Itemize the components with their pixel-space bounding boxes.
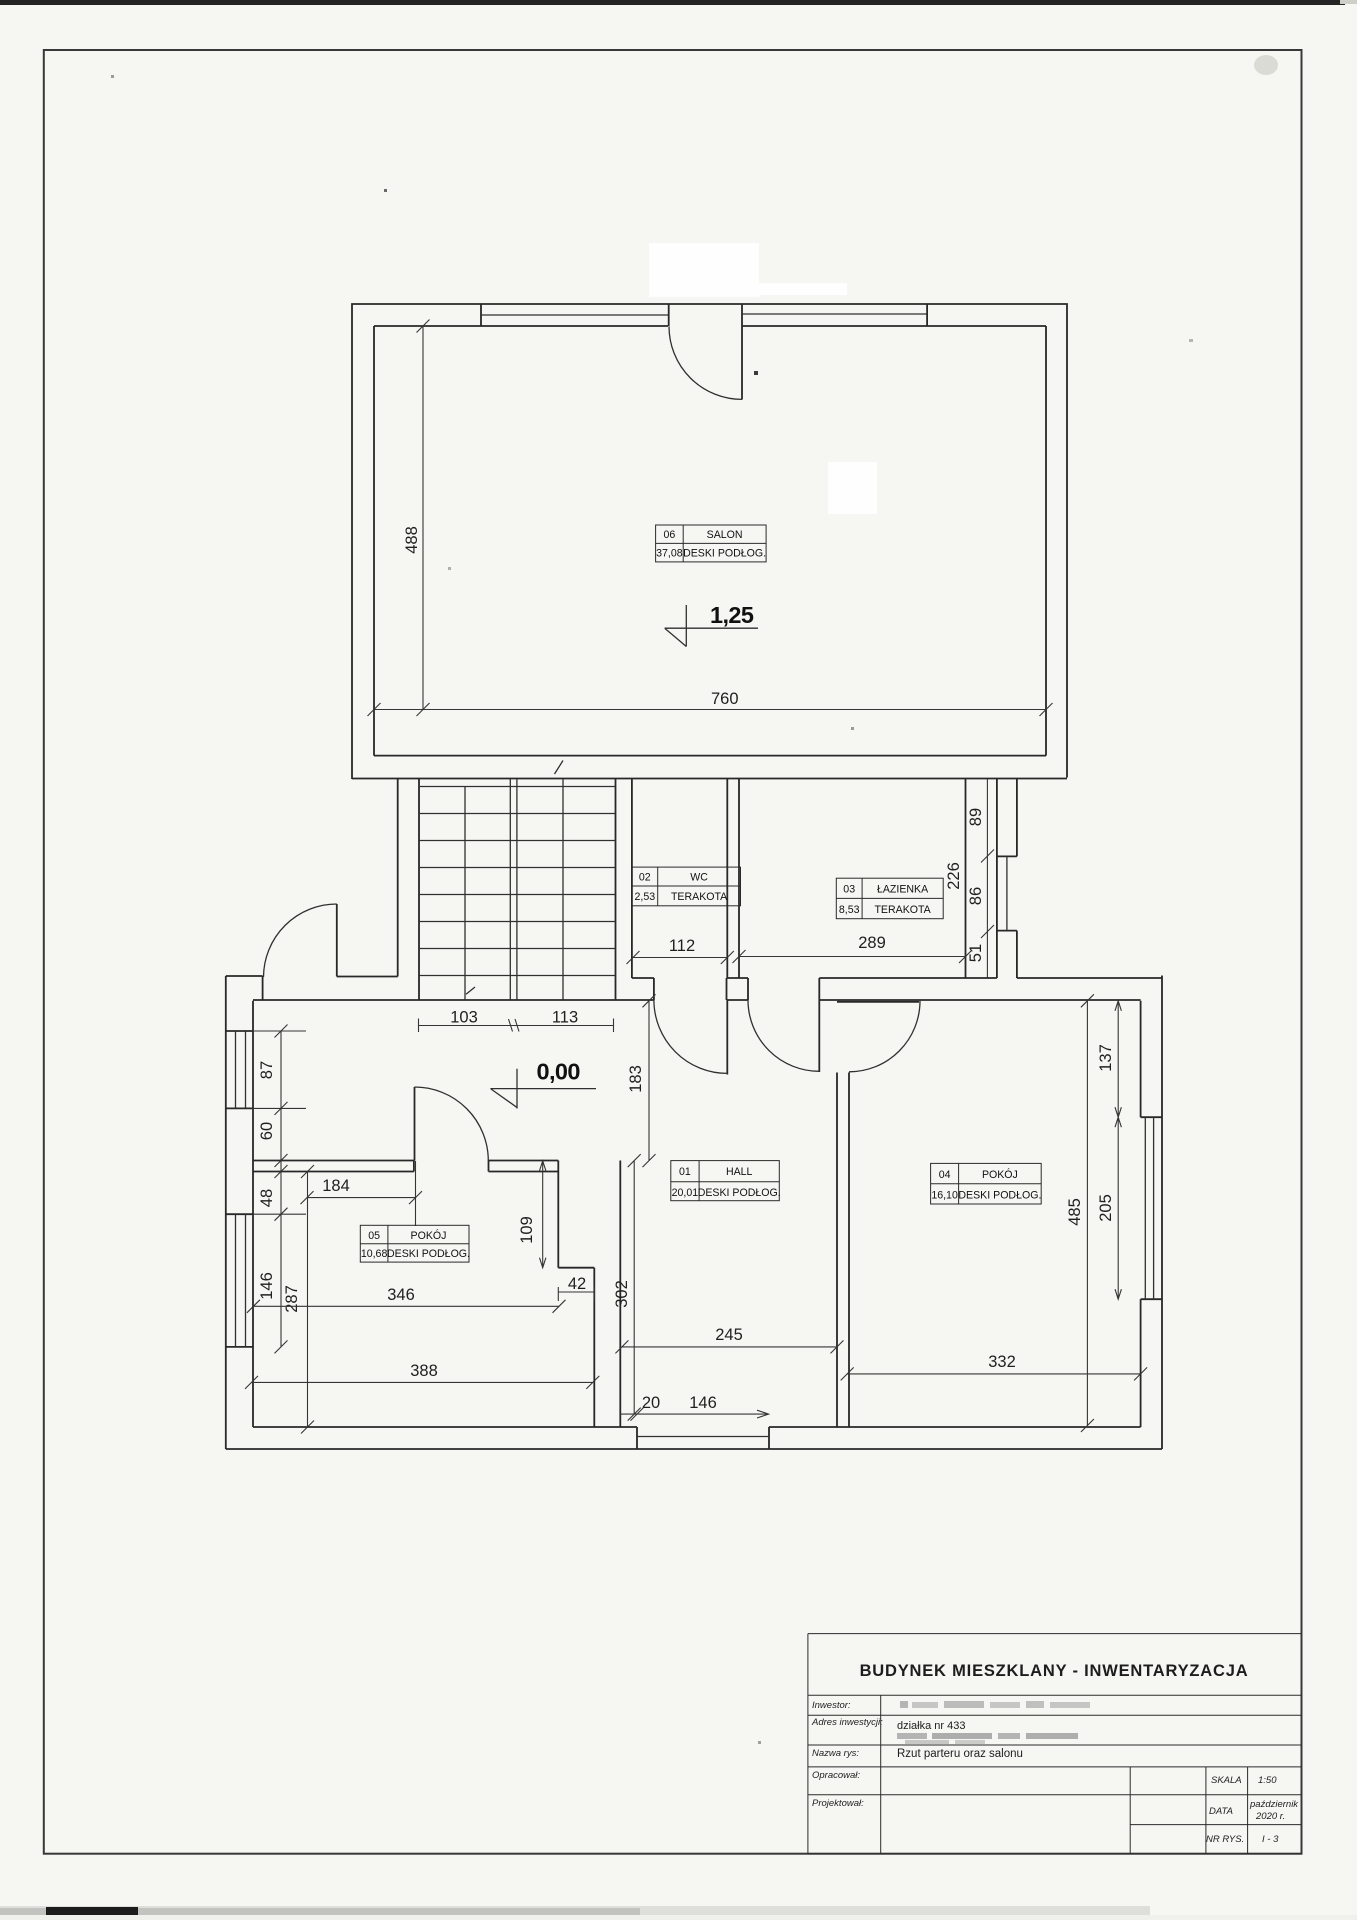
svg-text:146: 146 (689, 1394, 717, 1412)
svg-text:DESKI PODŁOG.: DESKI PODŁOG. (958, 1189, 1041, 1201)
svg-text:86: 86 (967, 887, 985, 905)
svg-text:184: 184 (322, 1177, 350, 1195)
svg-text:109: 109 (518, 1216, 536, 1244)
svg-text:388: 388 (410, 1362, 438, 1380)
svg-text:332: 332 (988, 1353, 1016, 1371)
svg-text:205: 205 (1097, 1194, 1115, 1222)
svg-text:1,25: 1,25 (710, 602, 754, 628)
svg-text:SALON: SALON (707, 529, 743, 541)
svg-text:42: 42 (568, 1275, 586, 1293)
svg-text:302: 302 (613, 1280, 631, 1308)
svg-text:DESKI PODŁOG.: DESKI PODŁOG. (683, 547, 766, 559)
svg-text:103: 103 (450, 1009, 478, 1027)
svg-text:87: 87 (258, 1061, 276, 1079)
svg-text:październik: październik (1249, 1799, 1299, 1810)
svg-text:1:50: 1:50 (1258, 1775, 1277, 1786)
svg-text:01: 01 (679, 1166, 691, 1178)
svg-text:48: 48 (258, 1189, 276, 1207)
svg-text:06: 06 (664, 529, 676, 541)
svg-text:TERAKOTA: TERAKOTA (874, 904, 931, 916)
svg-text:8,53: 8,53 (839, 904, 860, 916)
svg-text:POKÓJ: POKÓJ (982, 1168, 1018, 1181)
svg-text:02: 02 (639, 872, 651, 884)
svg-text:ŁAZIENKA: ŁAZIENKA (877, 883, 929, 895)
svg-text:16,10: 16,10 (931, 1189, 958, 1201)
svg-text:Adres inwestycji:: Adres inwestycji: (811, 1717, 883, 1728)
svg-text:05: 05 (368, 1230, 380, 1242)
svg-text:Rzut parteru oraz salonu: Rzut parteru oraz salonu (897, 1748, 1023, 1760)
svg-text:287: 287 (283, 1285, 301, 1313)
svg-text:NR RYS.: NR RYS. (1206, 1834, 1244, 1845)
svg-text:289: 289 (858, 934, 886, 952)
svg-text:HALL: HALL (726, 1166, 753, 1178)
svg-text:245: 245 (715, 1326, 743, 1344)
svg-text:346: 346 (387, 1286, 415, 1304)
svg-text:146: 146 (258, 1272, 276, 1300)
svg-text:485: 485 (1066, 1198, 1084, 1226)
svg-text:DESKI PODŁOG.: DESKI PODŁOG. (387, 1248, 470, 1260)
svg-text:112: 112 (669, 937, 695, 955)
svg-text:BUDYNEK MIESZKLANY - INWENTAR: BUDYNEK MIESZKLANY - INWENTARYZACJA (860, 1662, 1249, 1680)
svg-text:2020 r.: 2020 r. (1255, 1811, 1285, 1822)
svg-text:działka nr 433: działka nr 433 (897, 1720, 966, 1732)
svg-text:760: 760 (711, 690, 739, 708)
svg-text:I - 3: I - 3 (1262, 1834, 1279, 1845)
svg-text:TERAKOTA: TERAKOTA (671, 891, 728, 903)
svg-text:10,68: 10,68 (361, 1248, 388, 1260)
svg-text:03: 03 (843, 883, 855, 895)
svg-text:226: 226 (945, 862, 963, 890)
svg-text:20,01: 20,01 (672, 1187, 699, 1199)
svg-text:DATA: DATA (1209, 1806, 1233, 1817)
svg-text:04: 04 (939, 1169, 951, 1181)
svg-text:20: 20 (642, 1394, 660, 1412)
svg-text:60: 60 (258, 1122, 276, 1140)
svg-text:89: 89 (967, 808, 985, 826)
svg-text:37,08: 37,08 (656, 547, 683, 559)
svg-text:Nazwa rys:: Nazwa rys: (812, 1748, 859, 1759)
svg-text:0,00: 0,00 (537, 1059, 581, 1085)
svg-text:113: 113 (552, 1009, 578, 1027)
svg-text:SKALA: SKALA (1211, 1775, 1242, 1786)
svg-text:2,53: 2,53 (634, 891, 655, 903)
svg-text:183: 183 (627, 1065, 645, 1093)
svg-text:Opracował:: Opracował: (812, 1770, 860, 1781)
svg-text:WC: WC (690, 872, 708, 884)
svg-text:Inwestor:: Inwestor: (812, 1700, 851, 1711)
svg-text:Projektował:: Projektował: (812, 1798, 864, 1809)
svg-text:137: 137 (1097, 1044, 1115, 1072)
svg-text:488: 488 (403, 526, 421, 554)
svg-text:POKÓJ: POKÓJ (411, 1229, 447, 1242)
svg-text:DESKI PODŁOG.: DESKI PODŁOG. (698, 1187, 781, 1199)
